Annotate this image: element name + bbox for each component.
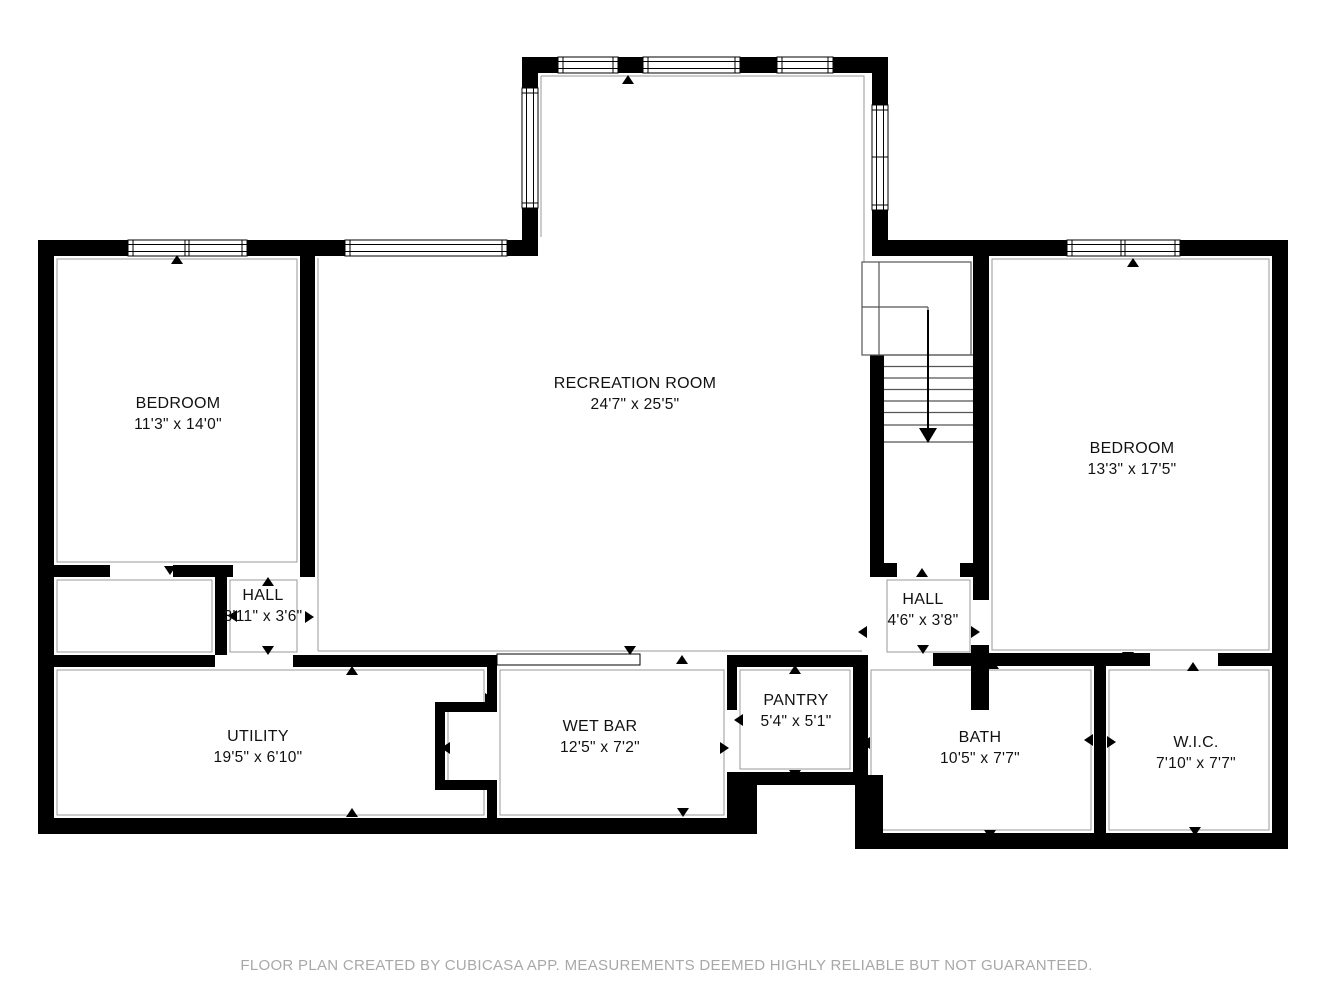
room-dimensions: 12'5" x 7'2" [560,737,640,758]
room-label-hall-left: HALL 3'11" x 3'6" [224,585,303,627]
room-dimensions: 3'11" x 3'6" [224,606,303,627]
window [777,57,833,73]
footer-disclaimer: FLOOR PLAN CREATED BY CUBICASA APP. MEAS… [0,957,1333,974]
room-dimensions: 24'7" x 25'5" [554,394,716,415]
stair-landing [862,262,971,355]
room-label-wet-bar: WET BAR 12'5" x 7'2" [560,716,640,758]
room-label-bedroom-right: BEDROOM 13'3" x 17'5" [1088,438,1177,480]
window [345,240,507,256]
room-name: RECREATION ROOM [554,373,716,394]
room-dimensions: 7'10" x 7'7" [1156,753,1236,774]
room-name: HALL [887,589,958,610]
window [522,88,538,208]
room-dimensions: 4'6" x 3'8" [887,610,958,631]
window [643,57,740,73]
window [128,240,247,256]
floor-plan-page: RECREATION ROOM 24'7" x 25'5" BEDROOM 11… [0,0,1333,1000]
room-dimensions: 10'5" x 7'7" [940,748,1020,769]
room-label-utility: UTILITY 19'5" x 6'10" [214,726,303,768]
room-name: WET BAR [560,716,640,737]
room-name: BATH [940,727,1020,748]
room-label-pantry: PANTRY 5'4" x 5'1" [760,690,831,732]
room-dimensions: 5'4" x 5'1" [760,711,831,732]
stairs-direction-arrow [919,428,937,443]
room-label-hall-right: HALL 4'6" x 3'8" [887,589,958,631]
room-label-wic: W.I.C. 7'10" x 7'7" [1156,732,1236,774]
room-name: BEDROOM [1088,438,1177,459]
windows [128,57,1180,256]
room-name: UTILITY [214,726,303,747]
room-name: BEDROOM [134,393,222,414]
room-name: HALL [224,585,303,606]
room-label-recreation-room: RECREATION ROOM 24'7" x 25'5" [554,373,716,415]
window [1067,240,1180,256]
room-name: PANTRY [760,690,831,711]
room-dimensions: 13'3" x 17'5" [1088,459,1177,480]
floor-plan-drawing [0,0,1333,1000]
window [558,57,618,73]
room-name: W.I.C. [1156,732,1236,753]
wet-bar-counter [497,654,640,665]
room-label-bedroom-left: BEDROOM 11'3" x 14'0" [134,393,222,435]
room-label-bath: BATH 10'5" x 7'7" [940,727,1020,769]
window [872,105,888,210]
room-dimensions: 11'3" x 14'0" [134,414,222,435]
room-dimensions: 19'5" x 6'10" [214,747,303,768]
